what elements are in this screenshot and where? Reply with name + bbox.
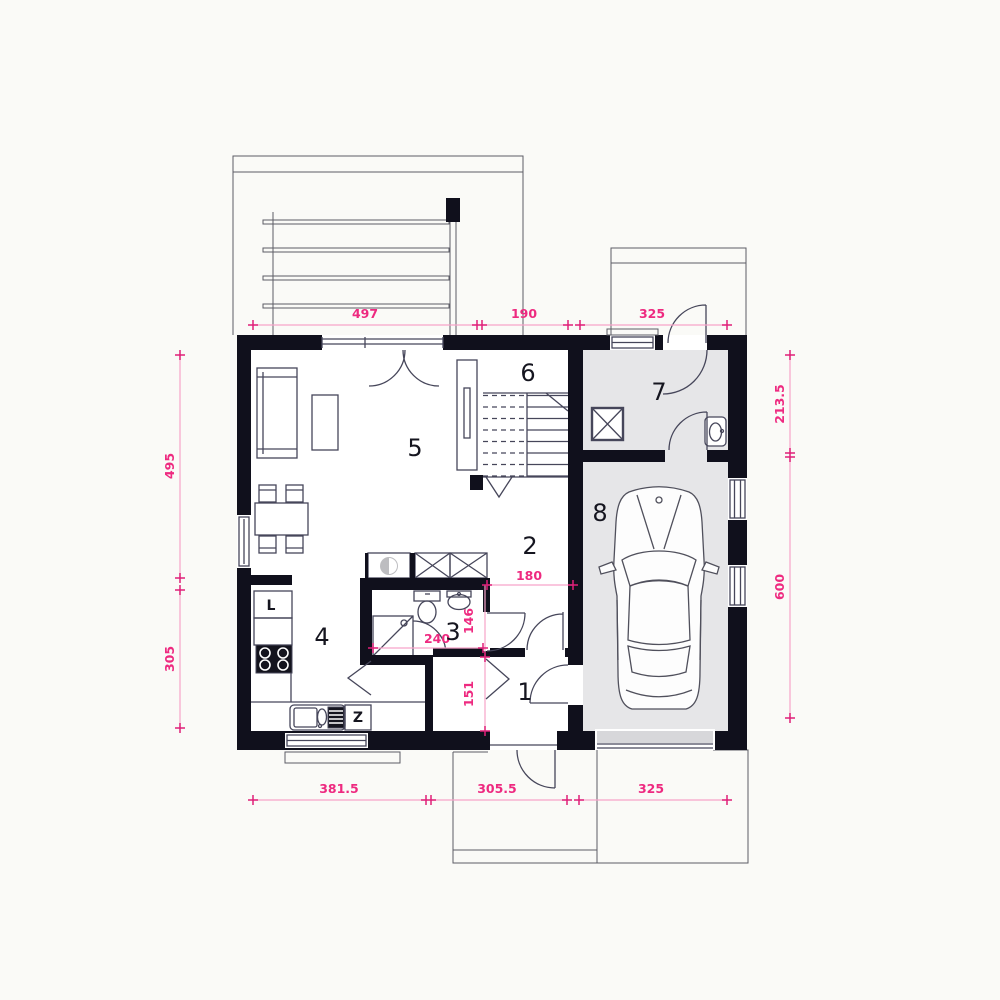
room-label-6: 6: [520, 359, 535, 387]
dim-bottom-3: 325: [638, 781, 664, 796]
boiler-room-entry-opening: [663, 335, 707, 350]
dim-top: 497 190 325: [248, 306, 732, 330]
room-label-2: 2: [522, 532, 537, 560]
dim-corridor-depth: 151: [461, 681, 476, 707]
stove: [256, 645, 292, 673]
front-door: [517, 750, 555, 788]
dim-right-1: 213.5: [772, 384, 787, 424]
dim-bath-depth: 146: [461, 608, 476, 634]
dim-left-1: 495: [162, 453, 177, 479]
left-window: [237, 515, 251, 568]
dishwasher-label: Z: [353, 710, 363, 726]
dim-top-2: 190: [511, 306, 537, 321]
wall-kitchen-stub: [251, 575, 292, 585]
room-label-5: 5: [407, 434, 422, 462]
front-door-opening: [490, 731, 557, 750]
kitchen-sink-unit: [290, 705, 345, 730]
utility-sink: [705, 417, 726, 446]
dim-bottom-1: 381.5: [319, 781, 359, 796]
side-porch-outline: [611, 248, 746, 335]
pergola-post: [446, 198, 460, 222]
wall-stair-stub: [470, 475, 483, 490]
room-label-3: 3: [445, 618, 460, 646]
dim-bottom-2: 305.5: [477, 781, 517, 796]
floor-plan-page: 497 190 325 381.5 305.5 325 495 305 213.…: [0, 0, 1000, 1000]
dim-top-1: 497: [352, 306, 378, 321]
floor-plan-drawing: 497 190 325 381.5 305.5 325 495 305 213.…: [0, 0, 1000, 1000]
dim-hall-width: 180: [516, 568, 542, 583]
dim-right-2: 600: [772, 574, 787, 600]
fridge-label: L: [267, 598, 276, 614]
wall-corridor: [425, 655, 433, 731]
room-label-4: 4: [314, 623, 329, 651]
room-label-1: 1: [517, 678, 532, 706]
room-label-7: 7: [651, 378, 666, 406]
dim-top-3: 325: [639, 306, 665, 321]
entry-porch-outline: [453, 752, 597, 863]
wall-bath-bottom: [360, 655, 433, 665]
dim-right: 213.5 600: [772, 350, 795, 723]
wall-bath-left: [360, 578, 372, 665]
dim-bottom: 381.5 305.5 325: [248, 781, 732, 805]
wall-boiler-garage: [568, 450, 747, 462]
dim-left-2: 305: [162, 646, 177, 672]
room-label-8: 8: [592, 499, 607, 527]
dim-left: 495 305: [162, 350, 185, 733]
driveway-apron-outline: [597, 750, 748, 863]
garage-door-panel: [597, 731, 713, 743]
kitchen-window-sill-outside: [285, 752, 400, 763]
chimney-shaft: [592, 408, 623, 440]
wall-bath-top: [360, 578, 490, 590]
